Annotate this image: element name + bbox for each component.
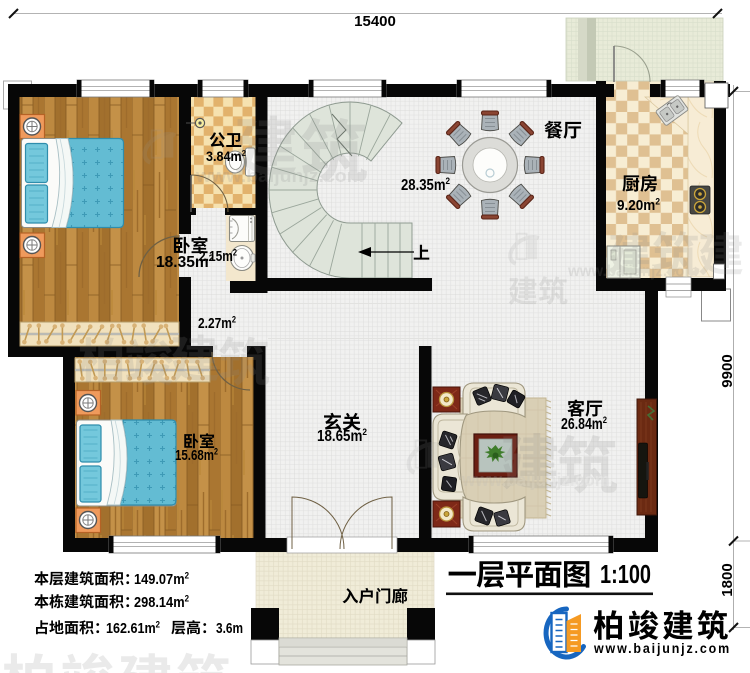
- svg-text:149.07m2: 149.07m2: [134, 570, 189, 588]
- svg-text:2.15m2: 2.15m2: [199, 247, 237, 265]
- svg-text:18.65m2: 18.65m2: [317, 427, 367, 445]
- svg-text:1800: 1800: [719, 563, 736, 596]
- svg-text:9900: 9900: [719, 354, 736, 387]
- svg-text:1:100: 1:100: [600, 559, 651, 589]
- svg-text:15.68m2: 15.68m2: [175, 446, 218, 464]
- svg-text:9.20m2: 9.20m2: [617, 196, 660, 214]
- svg-text:3.6m: 3.6m: [216, 620, 243, 637]
- svg-text:162.61m2: 162.61m2: [106, 619, 160, 637]
- svg-text:2.27m2: 2.27m2: [198, 314, 236, 332]
- svg-text:26.84m2: 26.84m2: [561, 415, 607, 433]
- svg-text:298.14m2: 298.14m2: [134, 593, 189, 611]
- svg-text:15400: 15400: [354, 13, 396, 30]
- svg-text:www.baijunjz.com: www.baijunjz.com: [461, 470, 610, 490]
- svg-text:www.baijunjz.com: www.baijunjz.com: [593, 641, 731, 656]
- svg-text:28.35m2: 28.35m2: [401, 176, 450, 194]
- svg-text:www.baijunjz.com: www.baijunjz.com: [195, 165, 364, 186]
- svg-text:www.baijunjz.com: www.baijunjz.com: [567, 263, 698, 280]
